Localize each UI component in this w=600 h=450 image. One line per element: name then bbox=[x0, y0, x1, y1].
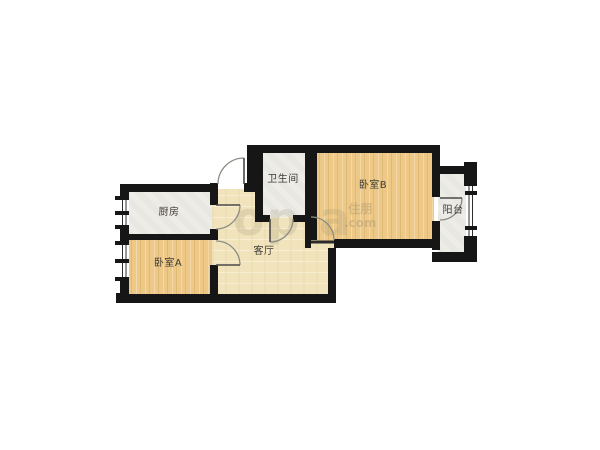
wall-bathroom-right bbox=[305, 153, 317, 240]
room-label-kitchen: 厨房 bbox=[159, 208, 180, 218]
floor-plan: opla 住朋 .com bbox=[0, 0, 600, 450]
wall-balcony-corner-top bbox=[464, 162, 477, 186]
wall-leftblock-right-2 bbox=[210, 229, 218, 240]
watermark-com: .com bbox=[344, 216, 376, 230]
window-kitchen bbox=[120, 197, 129, 228]
wall-topleft-block-top bbox=[120, 184, 218, 192]
room-label-bedroom-a: 卧室A bbox=[154, 259, 182, 269]
room-label-bathroom: 卫生间 bbox=[267, 175, 299, 185]
room-label-balcony: 阳台 bbox=[443, 206, 464, 216]
wall-leftblock-right-3 bbox=[210, 265, 218, 302]
wall-kitchen-bedroom-divider bbox=[129, 234, 216, 240]
room-label-bedroom-b: 卧室B bbox=[359, 181, 387, 191]
wall-bedroom-b-bottom-1 bbox=[305, 239, 311, 248]
wall-bedroom-b-right-2 bbox=[432, 221, 440, 250]
watermark-domain: 住朋 .com bbox=[344, 203, 376, 231]
wall-bathroom-left bbox=[255, 153, 263, 222]
wall-bedroom-b-right-1 bbox=[432, 145, 440, 197]
window-bedroom-a bbox=[120, 242, 129, 281]
wall-bathroom-bottom-2 bbox=[293, 215, 305, 222]
wall-top-long bbox=[247, 145, 440, 153]
wall-living-right bbox=[328, 248, 336, 303]
window-balcony bbox=[466, 186, 475, 236]
wall-balcony-bottom bbox=[432, 252, 477, 262]
wall-bedroom-b-bottom-2 bbox=[334, 239, 440, 248]
room-label-living: 客厅 bbox=[254, 247, 275, 257]
wall-bottom bbox=[120, 294, 336, 303]
wall-bathroom-bottom-1 bbox=[255, 215, 270, 222]
wall-entrance-stub-left bbox=[210, 183, 218, 192]
watermark-cn: 住朋 bbox=[348, 202, 372, 216]
entrance-door-arc bbox=[218, 158, 244, 184]
wall-bottom-left-corner bbox=[116, 293, 129, 303]
